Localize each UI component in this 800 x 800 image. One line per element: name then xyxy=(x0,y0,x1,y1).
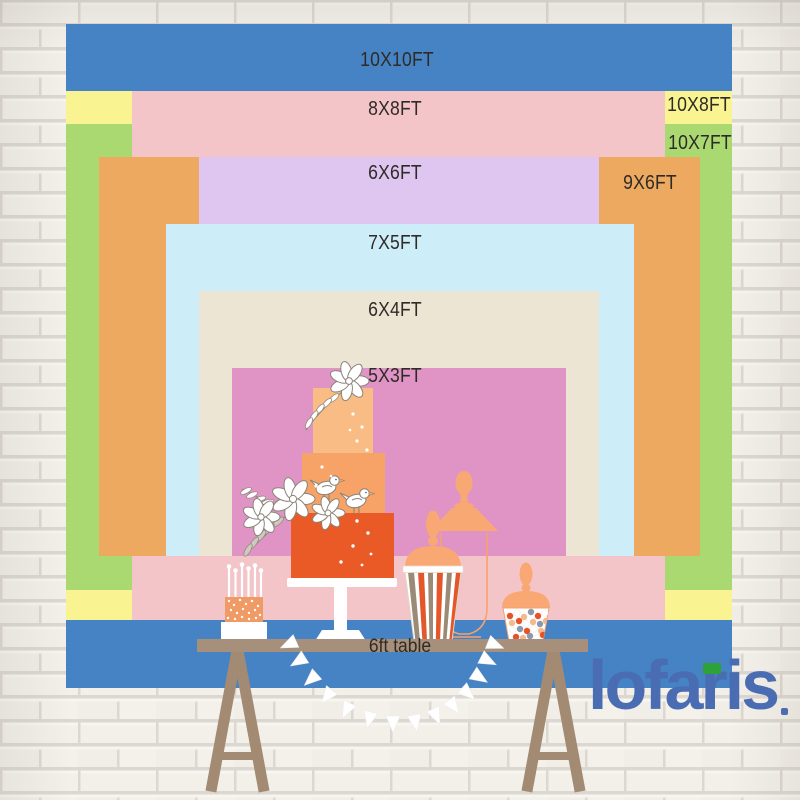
logo-flag-icon xyxy=(703,663,721,674)
table-brace xyxy=(216,752,260,760)
dessert-table-decor xyxy=(190,360,610,660)
label-10x8ft: 10X8FT xyxy=(667,95,731,115)
table-brace xyxy=(532,752,576,760)
label-9x6ft: 9X6FT xyxy=(623,173,677,193)
brand-logo: lofaris xyxy=(588,652,777,718)
bunting-garland xyxy=(280,632,510,742)
backdrop-size-chart: 10X10FT 10X8FT 10X7FT 8X8FT 9X6FT 6X6FT … xyxy=(0,0,800,800)
label-6x6ft: 6X6FT xyxy=(368,163,422,183)
label-8x8ft: 8X8FT xyxy=(368,99,422,119)
flower-icon xyxy=(242,497,280,536)
candy-jar xyxy=(502,563,550,642)
label-7x5ft: 7X5FT xyxy=(368,233,422,253)
mini-cake-with-candles xyxy=(221,562,267,641)
label-10x10ft: 10X10FT xyxy=(360,50,434,70)
label-10x7ft: 10X7FT xyxy=(668,133,732,153)
logo-mark xyxy=(781,708,788,715)
label-6x4ft: 6X4FT xyxy=(368,300,422,320)
